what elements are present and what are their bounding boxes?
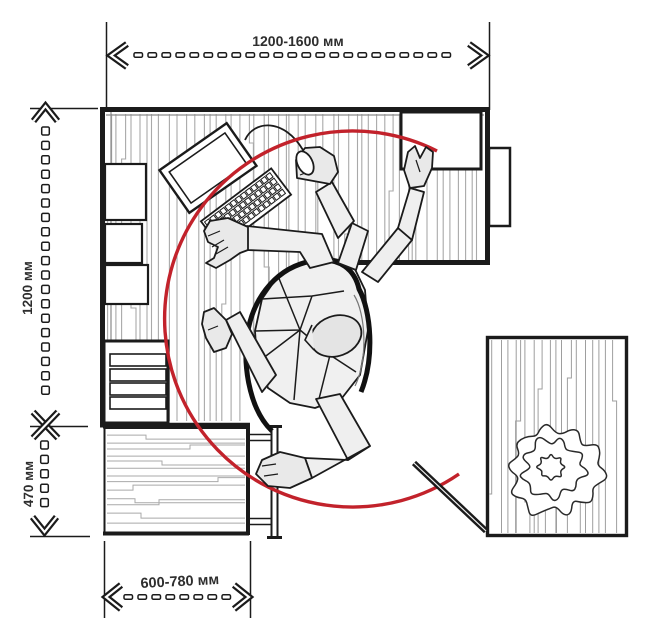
svg-text:1200 мм: 1200 мм xyxy=(20,261,35,315)
svg-text:470 мм: 470 мм xyxy=(21,461,36,507)
svg-text:1200-1600 мм: 1200-1600 мм xyxy=(252,33,344,49)
